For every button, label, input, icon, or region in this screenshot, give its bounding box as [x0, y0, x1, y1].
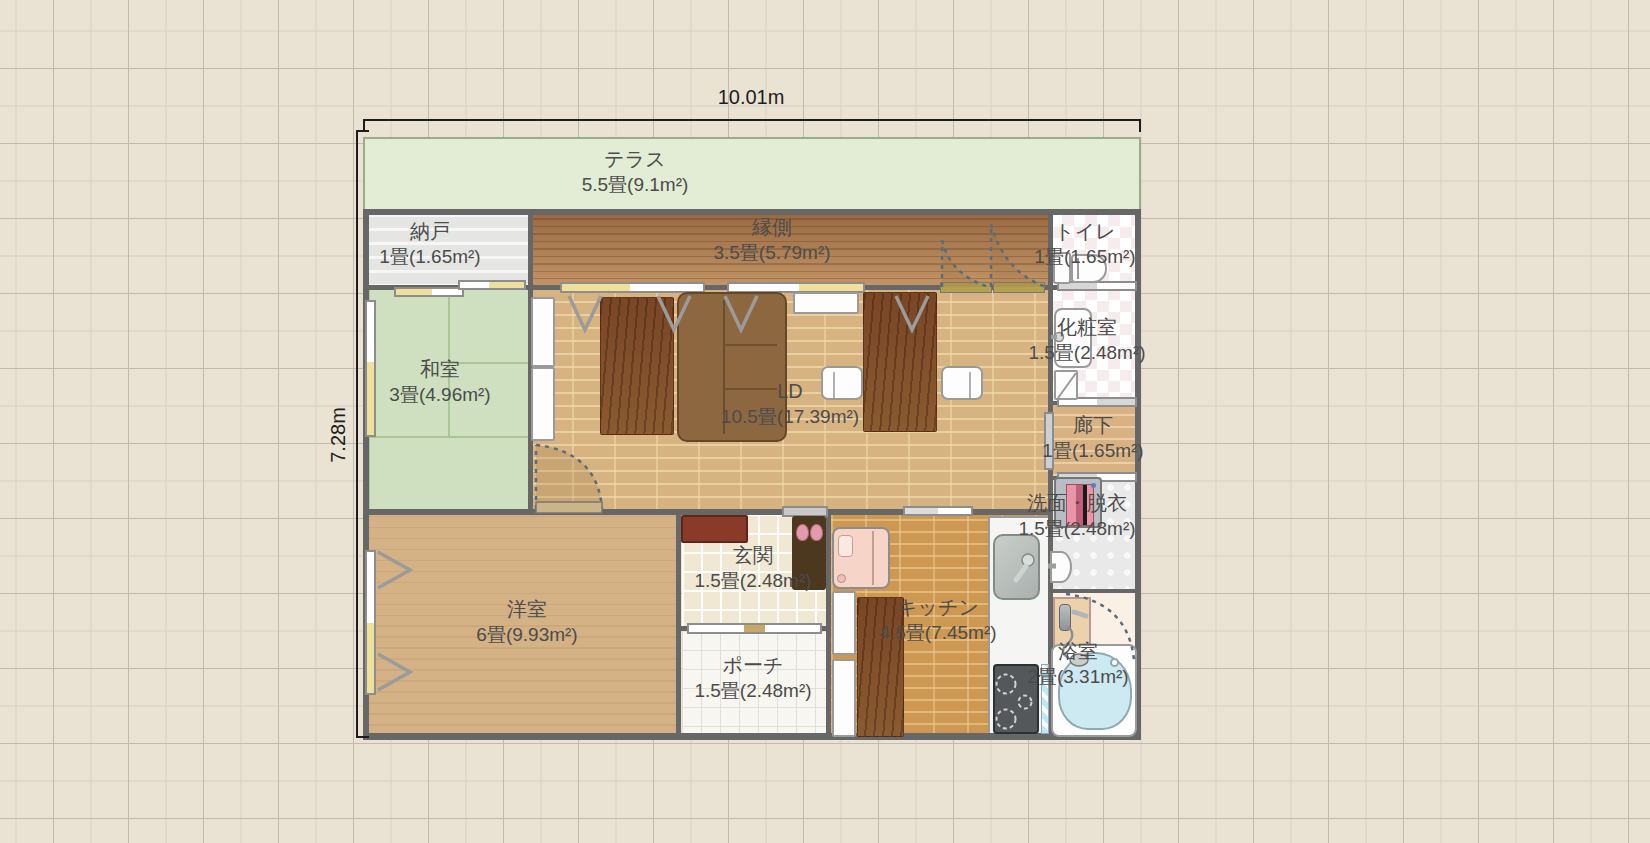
- dining-table-1[interactable]: [600, 297, 674, 435]
- room-label-porch: ポーチ1.5畳(2.48m²): [694, 652, 811, 703]
- powder-cabinet[interactable]: [1054, 370, 1078, 400]
- floorplan-canvas: 10.01m 7.28m: [0, 0, 1650, 843]
- kitchen-cabinet-upper[interactable]: [832, 591, 856, 655]
- window-washitsu-left[interactable]: [365, 300, 376, 437]
- room-label-laundry: 洗面・脱衣1.5畳(2.48m²): [1018, 490, 1135, 541]
- wall-washbasin[interactable]: [1050, 551, 1072, 583]
- engawa-door-leaf-right[interactable]: [993, 282, 1045, 293]
- width-dimension-tick-right: [1139, 119, 1141, 132]
- window-kitchen-top[interactable]: [903, 506, 973, 516]
- entrance-door[interactable]: [687, 623, 822, 634]
- pillow: [838, 535, 853, 557]
- height-dimension-tick-top: [356, 130, 369, 132]
- room-label-kitchen: キッチン4.5畳(7.45m²): [879, 594, 996, 645]
- washing-machine-button: [1091, 483, 1096, 488]
- room-label-youshitsu: 洋室6畳(9.93m²): [476, 596, 577, 647]
- room-label-washitsu: 和室3畳(4.96m²): [389, 356, 490, 407]
- floor-terrace[interactable]: [363, 137, 1141, 215]
- height-dimension-tick-bottom: [356, 736, 369, 738]
- slipper: [810, 524, 823, 541]
- washitsu-closet-panel-lower[interactable]: [531, 367, 555, 441]
- wall-laundry-bottom: [1051, 589, 1137, 593]
- room-label-storage: 納戸1畳(1.65m²): [379, 218, 480, 269]
- room-label-genkan: 玄関1.5畳(2.48m²): [694, 542, 811, 593]
- kitchen-sink[interactable]: [993, 534, 1040, 600]
- room-label-engawa: 縁側3.5畳(5.79m²): [713, 214, 830, 265]
- tv-board[interactable]: [793, 292, 859, 314]
- width-dimension-label: 10.01m: [718, 86, 785, 109]
- slipper: [796, 524, 809, 541]
- washitsu-closet-panel-upper[interactable]: [531, 297, 555, 367]
- height-dimension-label: 7.28m: [327, 407, 350, 463]
- room-label-powder: 化粧室1.5畳(2.48m²): [1028, 314, 1145, 365]
- height-dimension-line: [356, 130, 358, 738]
- window-youshitsu-left[interactable]: [365, 550, 376, 695]
- chair-right[interactable]: [941, 366, 983, 400]
- width-dimension-line: [363, 119, 1141, 121]
- engawa-door-leaf-left[interactable]: [940, 282, 992, 293]
- tatami-divider: [370, 436, 531, 438]
- room-label-terrace: テラス5.5畳(9.1m²): [582, 146, 689, 197]
- room-label-bath: 浴室2畳(3.31m²): [1027, 638, 1128, 689]
- room-label-toilet: トイレ1畳(1.65m²): [1034, 218, 1135, 269]
- kitchen-cabinet-lower[interactable]: [832, 659, 856, 737]
- room-label-hallway: 廊下1畳(1.65m²): [1042, 412, 1143, 463]
- bed[interactable]: [832, 527, 890, 589]
- wall-bottom-outer: [363, 733, 1141, 740]
- window-ld-left[interactable]: [560, 282, 705, 293]
- dining-table-2[interactable]: [863, 292, 937, 432]
- sliding-door-storage-a[interactable]: [394, 287, 464, 297]
- shower-head: [1059, 604, 1071, 631]
- sliding-door-storage-b[interactable]: [458, 280, 526, 290]
- room-label-ld: LD10.5畳(17.39m²): [721, 378, 859, 429]
- shoe-cabinet[interactable]: [681, 515, 748, 543]
